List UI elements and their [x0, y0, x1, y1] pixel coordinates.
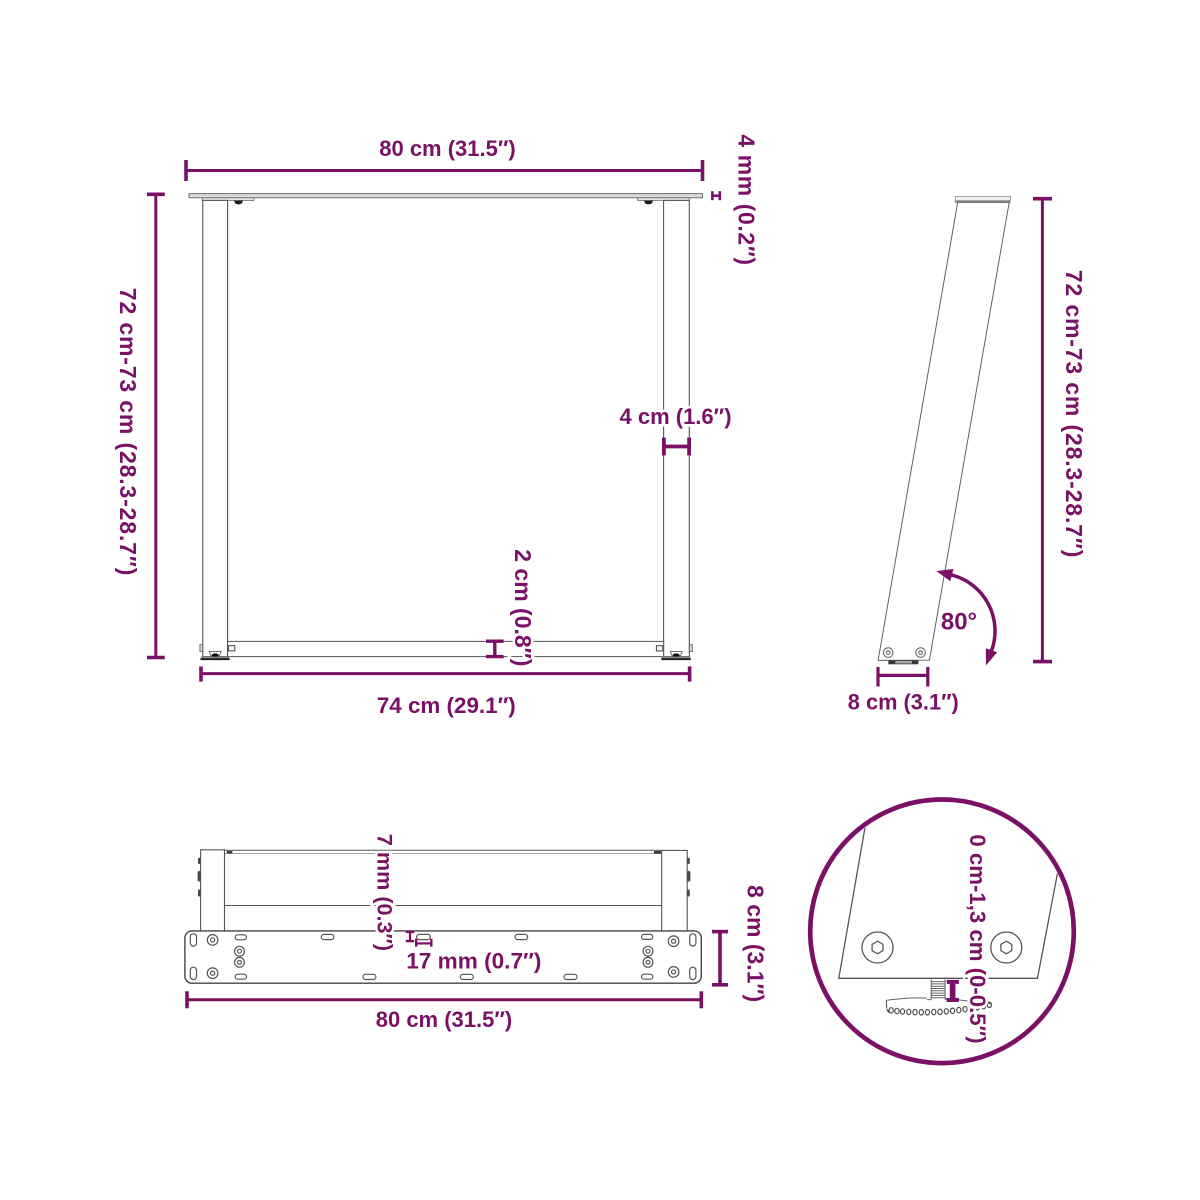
svg-text:80 cm (31.5″): 80 cm (31.5″) [376, 1007, 513, 1032]
svg-text:17 mm (0.7″): 17 mm (0.7″) [406, 948, 541, 973]
svg-text:0 cm-1,3 cm (0-0.5″): 0 cm-1,3 cm (0-0.5″) [965, 834, 990, 1043]
svg-text:8 cm (3.1″): 8 cm (3.1″) [848, 690, 959, 715]
svg-text:4 cm (1.6″): 4 cm (1.6″) [619, 404, 731, 429]
svg-text:80°: 80° [941, 608, 977, 635]
svg-text:80 cm (31.5″): 80 cm (31.5″) [379, 136, 516, 161]
svg-text:74 cm (29.1″): 74 cm (29.1″) [377, 693, 516, 718]
svg-text:2 cm (0.8″): 2 cm (0.8″) [510, 549, 536, 666]
svg-text:4 mm (0.2″): 4 mm (0.2″) [734, 134, 760, 265]
svg-text:7 mm (0.3″): 7 mm (0.3″) [373, 834, 398, 951]
svg-text:8 cm (3.1″): 8 cm (3.1″) [743, 885, 769, 1002]
svg-text:72 cm-73 cm (28.3-28.7″): 72 cm-73 cm (28.3-28.7″) [1061, 270, 1087, 558]
svg-text:72 cm-73 cm (28.3-28.7″): 72 cm-73 cm (28.3-28.7″) [115, 288, 141, 576]
